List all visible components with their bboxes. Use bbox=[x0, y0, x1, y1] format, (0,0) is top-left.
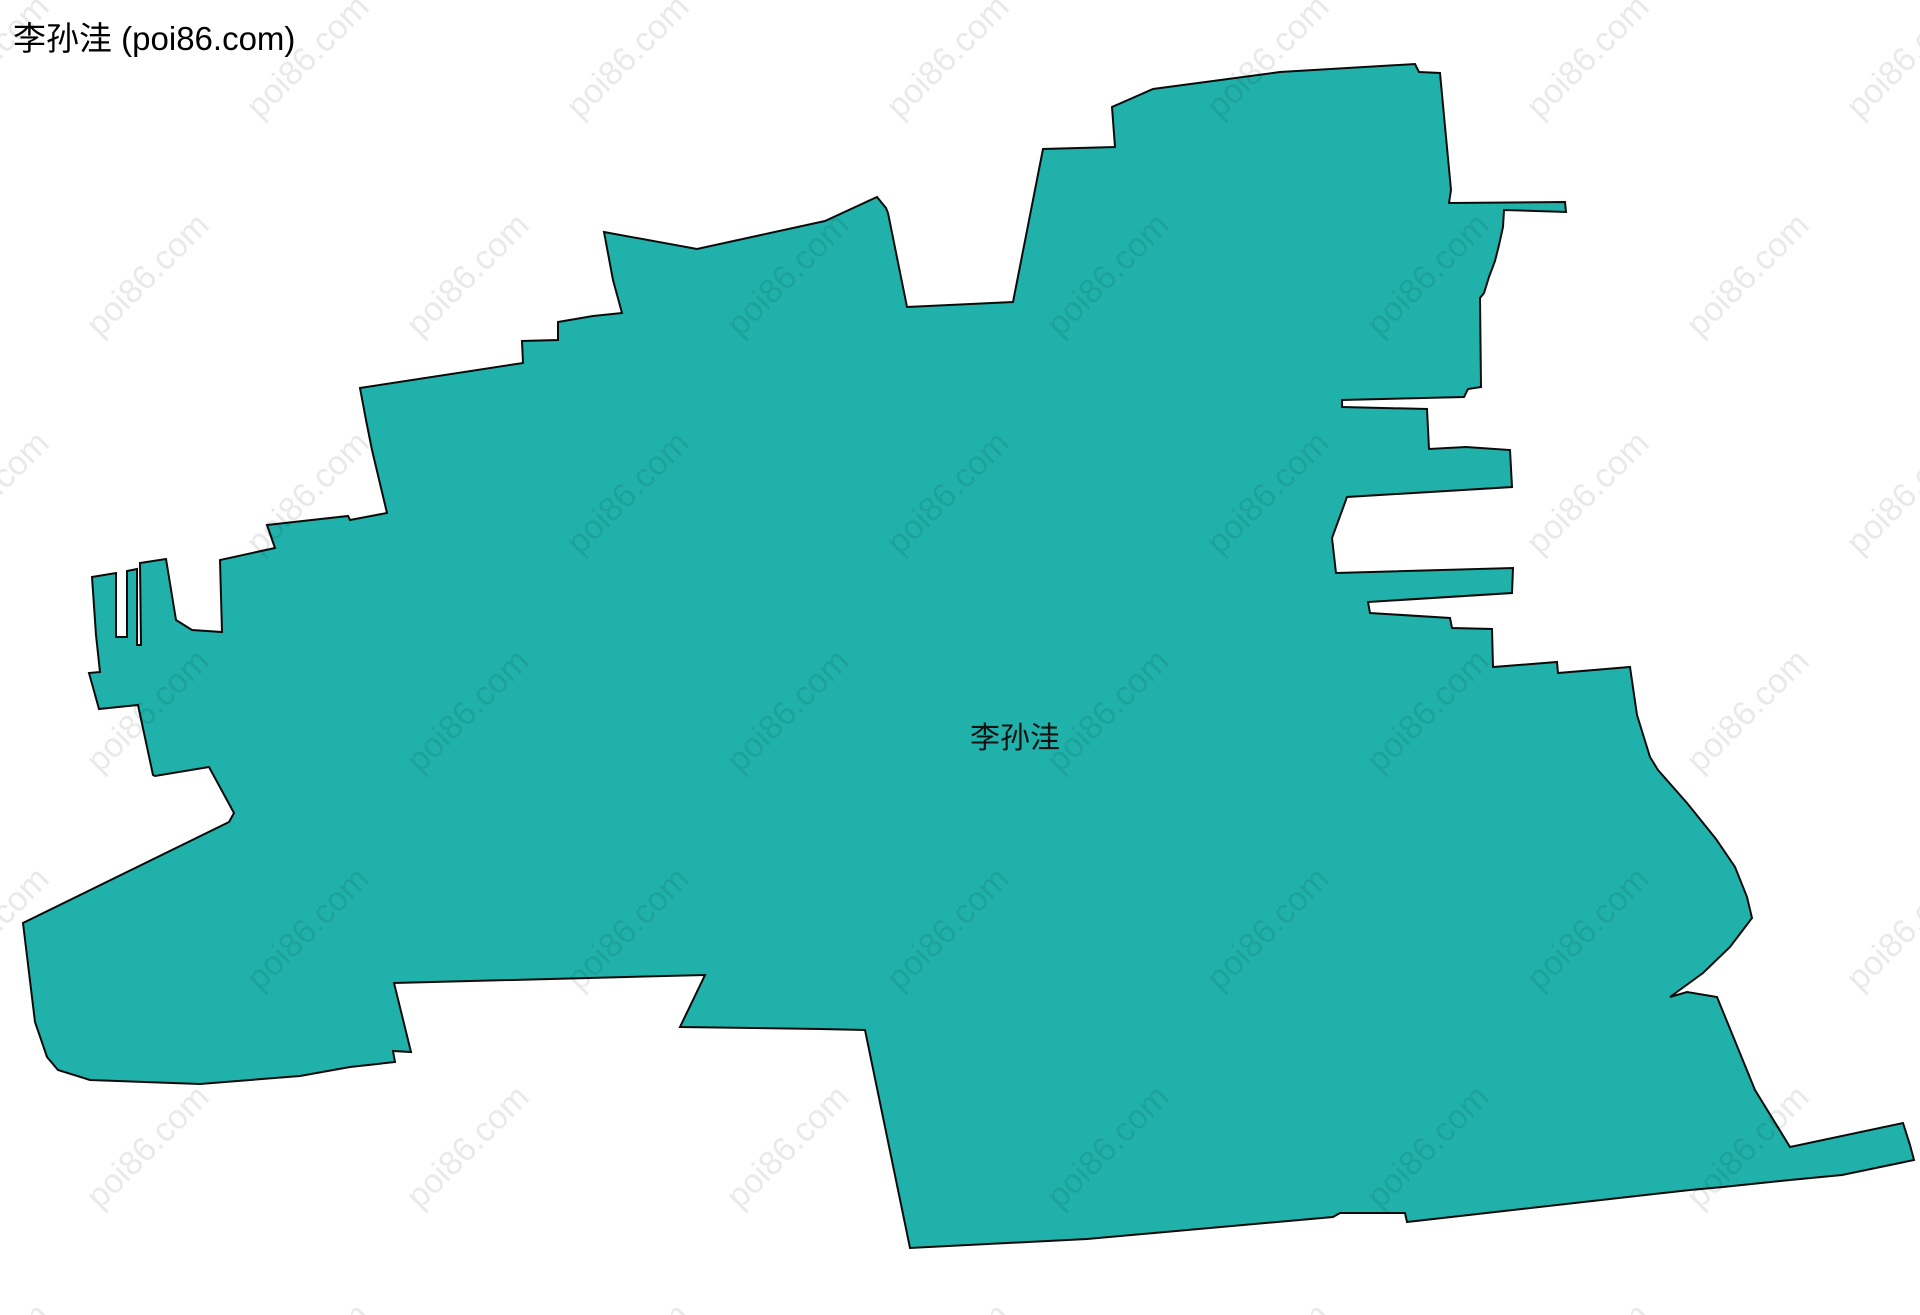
watermark-text: poi86.com bbox=[1519, 1296, 1657, 1315]
watermark-text: poi86.com bbox=[399, 1078, 537, 1216]
watermark-text: poi86.com bbox=[0, 1296, 57, 1315]
watermark-text: poi86.com bbox=[1839, 0, 1920, 126]
watermark-text: poi86.com bbox=[559, 0, 697, 126]
page-title: 李孙洼 (poi86.com) bbox=[13, 12, 295, 60]
watermark-text: poi86.com bbox=[399, 206, 537, 344]
watermark-text: poi86.com bbox=[1199, 1296, 1337, 1315]
watermark-text: poi86.com bbox=[79, 1078, 217, 1216]
watermark-text: poi86.com bbox=[719, 1078, 857, 1216]
watermark-text: poi86.com bbox=[559, 1296, 697, 1315]
region-shape bbox=[23, 64, 1914, 1248]
watermark-text: poi86.com bbox=[1839, 1296, 1920, 1315]
watermark-text: poi86.com bbox=[1679, 206, 1817, 344]
watermark-text: poi86.com bbox=[879, 1296, 1017, 1315]
watermark-text: poi86.com bbox=[1679, 642, 1817, 780]
region-polygon bbox=[23, 64, 1914, 1248]
map-canvas: poi86.compoi86.compoi86.compoi86.compoi8… bbox=[0, 0, 1920, 1315]
watermark-text: poi86.com bbox=[1519, 0, 1657, 126]
watermark-text: poi86.com bbox=[239, 1296, 377, 1315]
watermark-text: poi86.com bbox=[1839, 424, 1920, 562]
watermark-text: poi86.com bbox=[879, 0, 1017, 126]
region-label: 李孙洼 bbox=[970, 722, 1060, 755]
watermark-text: poi86.com bbox=[1519, 424, 1657, 562]
watermark-text: poi86.com bbox=[0, 424, 57, 562]
watermark-text: poi86.com bbox=[79, 206, 217, 344]
watermark-text: poi86.com bbox=[1839, 860, 1920, 998]
